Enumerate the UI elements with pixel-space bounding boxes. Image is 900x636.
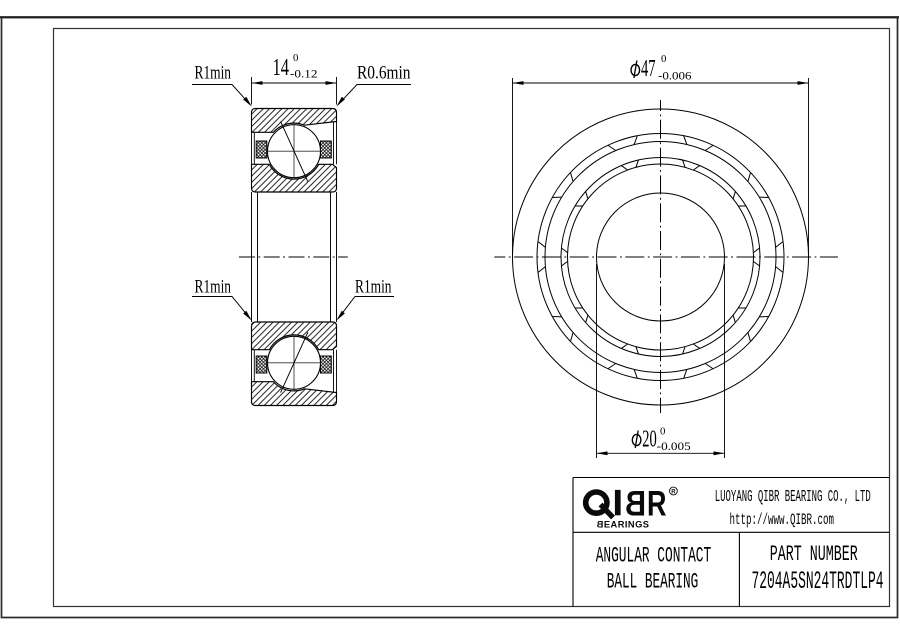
svg-text:-0.12: -0.12 — [290, 69, 318, 81]
svg-text:R1min: R1min — [355, 277, 392, 298]
svg-text:-0.005: -0.005 — [657, 441, 691, 453]
svg-text:14: 14 — [273, 54, 290, 81]
svg-text:0: 0 — [660, 426, 665, 438]
svg-text:BALL BEARING: BALL BEARING — [607, 568, 699, 594]
svg-text:0: 0 — [661, 53, 666, 65]
svg-text:7204A5SN24TRDTLP4: 7204A5SN24TRDTLP4 — [752, 567, 884, 596]
svg-text:LUOYANG QIBR BEARING CO., LTD: LUOYANG QIBR BEARING CO., LTD — [715, 488, 871, 507]
svg-text:-0.006: -0.006 — [658, 71, 692, 83]
svg-text:B: B — [625, 484, 646, 523]
svg-text:20: 20 — [642, 426, 657, 453]
svg-text:R: R — [671, 490, 676, 496]
svg-text:ANGULAR CONTACT: ANGULAR CONTACT — [596, 543, 712, 569]
svg-text:47: 47 — [641, 55, 656, 82]
svg-text:R1min: R1min — [195, 63, 232, 84]
svg-text:0: 0 — [293, 52, 298, 64]
svg-text:R0.6min: R0.6min — [357, 63, 411, 84]
svg-text:R1min: R1min — [195, 277, 232, 298]
svg-text:PART NUMBER: PART NUMBER — [770, 541, 858, 567]
svg-text:http://www.QIBR.com: http://www.QIBR.com — [730, 511, 835, 529]
svg-text:R: R — [647, 484, 667, 523]
svg-text:B: B — [596, 519, 603, 529]
svg-text:EARINGS: EARINGS — [604, 519, 650, 529]
